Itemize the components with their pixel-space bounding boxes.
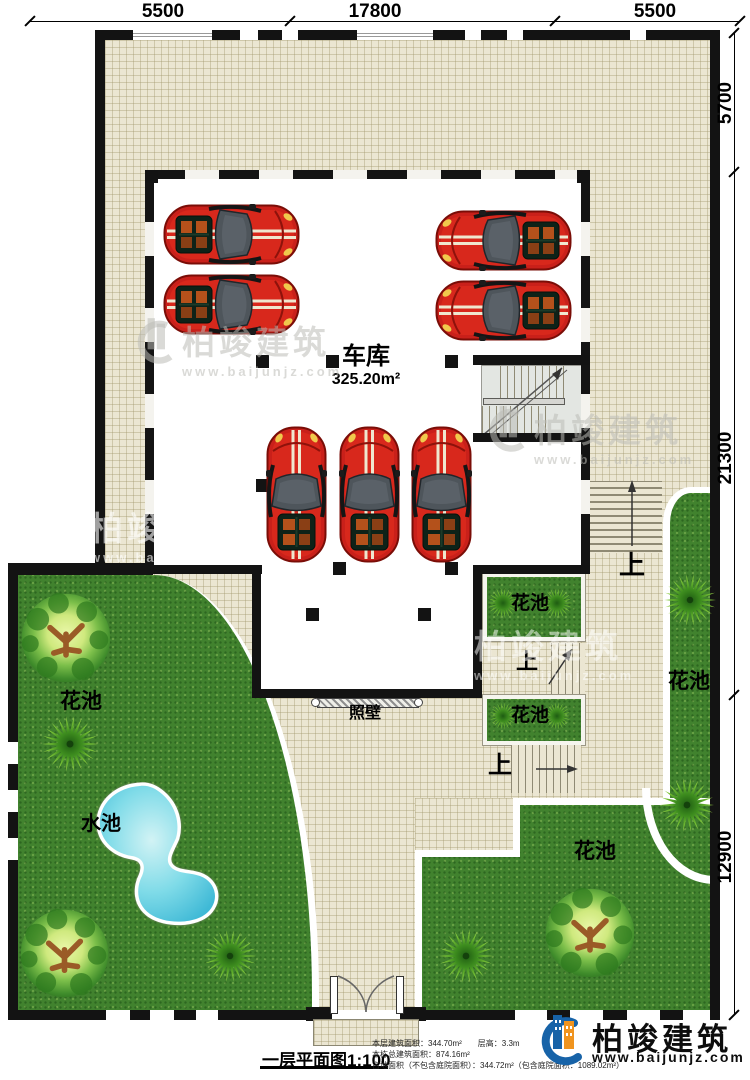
shrub-icon — [663, 573, 717, 627]
tree-icon — [19, 591, 113, 685]
up-label: 上 — [484, 753, 516, 779]
boundary-wall-step — [8, 563, 153, 575]
wall — [145, 170, 590, 179]
up-arrow — [534, 762, 580, 776]
water-pool-label: 水池 — [71, 813, 131, 835]
garden-notch-path — [415, 798, 520, 857]
boundary-window — [630, 30, 646, 40]
pillar — [445, 355, 458, 368]
boundary-window — [357, 30, 433, 40]
car-top-view — [163, 273, 300, 336]
wall — [252, 689, 482, 698]
boundary-window — [133, 30, 212, 40]
boundary-window — [8, 742, 18, 764]
stair-wall-top — [473, 355, 590, 365]
up-arrow — [545, 646, 577, 688]
pillar — [445, 562, 458, 575]
car-top-view — [435, 209, 572, 272]
up-label: 上 — [512, 650, 542, 674]
garage-area-label: 325.20m² — [306, 371, 426, 389]
screen-wall-post — [311, 698, 320, 707]
flower-bed-label: 花池 — [495, 594, 565, 615]
stair-cut-line — [476, 362, 582, 440]
dimension-label: 12900 — [715, 817, 737, 897]
boundary-window — [196, 1010, 218, 1020]
pillar — [306, 608, 319, 621]
pillar — [333, 562, 346, 575]
boundary-window — [465, 30, 481, 40]
wall — [581, 170, 590, 574]
shrub-icon — [438, 928, 494, 984]
up-arrow — [624, 478, 640, 548]
pillar — [418, 608, 431, 621]
watermark-logo-icon — [40, 502, 84, 554]
shrub-icon — [203, 929, 257, 983]
brand-website: www.baijunjz.com — [592, 1049, 745, 1065]
shrub-icon — [41, 715, 99, 773]
boundary-window — [106, 1010, 130, 1020]
gate-door-swing — [324, 972, 408, 1014]
flower-bed-label: 花池 — [560, 840, 630, 863]
boundary-wall-left-upper — [95, 30, 105, 575]
car-top-view — [410, 426, 473, 563]
area-info-line: 本栋总建筑面积：874.16m² — [372, 1049, 470, 1060]
flower-bed-label: 花池 — [654, 670, 724, 693]
wall — [473, 565, 482, 698]
wall — [252, 565, 261, 698]
car-top-view — [163, 203, 300, 266]
car-top-view — [338, 426, 401, 563]
screen-wall-label: 照壁 — [330, 705, 400, 723]
boundary-window — [150, 1010, 174, 1020]
dimension-label: 21300 — [715, 418, 737, 498]
dimension-label: 5500 — [118, 1, 208, 23]
wall — [145, 565, 262, 574]
flower-strip-right — [663, 487, 710, 798]
boundary-window — [240, 30, 258, 40]
dimension-label: 5500 — [610, 1, 700, 23]
flower-bed-label: 花池 — [495, 706, 565, 727]
area-info-line: 本层建筑面积：344.70m² 层高：3.3m — [372, 1038, 520, 1049]
area-info-line: 占地面积（不包含庭院面积）：344.72m²（包含庭院面积：1089.02m²） — [372, 1060, 624, 1071]
car-top-view — [265, 426, 328, 563]
brand-logo-icon — [536, 1012, 584, 1070]
car-top-view — [435, 279, 572, 342]
boundary-window — [282, 30, 298, 40]
floor-plan: 车库 325.20m² 花池 水池 花池 花池 花池 花池 照壁 上 上 上 柏… — [0, 0, 750, 1080]
wall — [145, 170, 154, 574]
wall-corner — [577, 170, 590, 183]
dimension-label: 17800 — [330, 1, 420, 23]
boundary-window — [8, 790, 18, 812]
boundary-window — [8, 838, 18, 860]
shrub-icon — [659, 777, 715, 833]
stair-wall-bottom — [473, 433, 590, 442]
wall — [475, 565, 590, 574]
up-label: 上 — [614, 551, 650, 580]
pillar — [256, 355, 269, 368]
wall-corner — [145, 170, 158, 183]
plan-title-underline — [260, 1066, 388, 1069]
dimension-label: 5700 — [715, 68, 737, 138]
garage-room-lower — [261, 571, 473, 691]
tree-icon — [543, 886, 637, 980]
screen-wall-post — [414, 698, 423, 707]
flower-bed-label: 花池 — [46, 690, 116, 713]
garage-label: 车库 — [316, 344, 416, 370]
boundary-window — [507, 30, 523, 40]
water-pool — [92, 782, 227, 932]
